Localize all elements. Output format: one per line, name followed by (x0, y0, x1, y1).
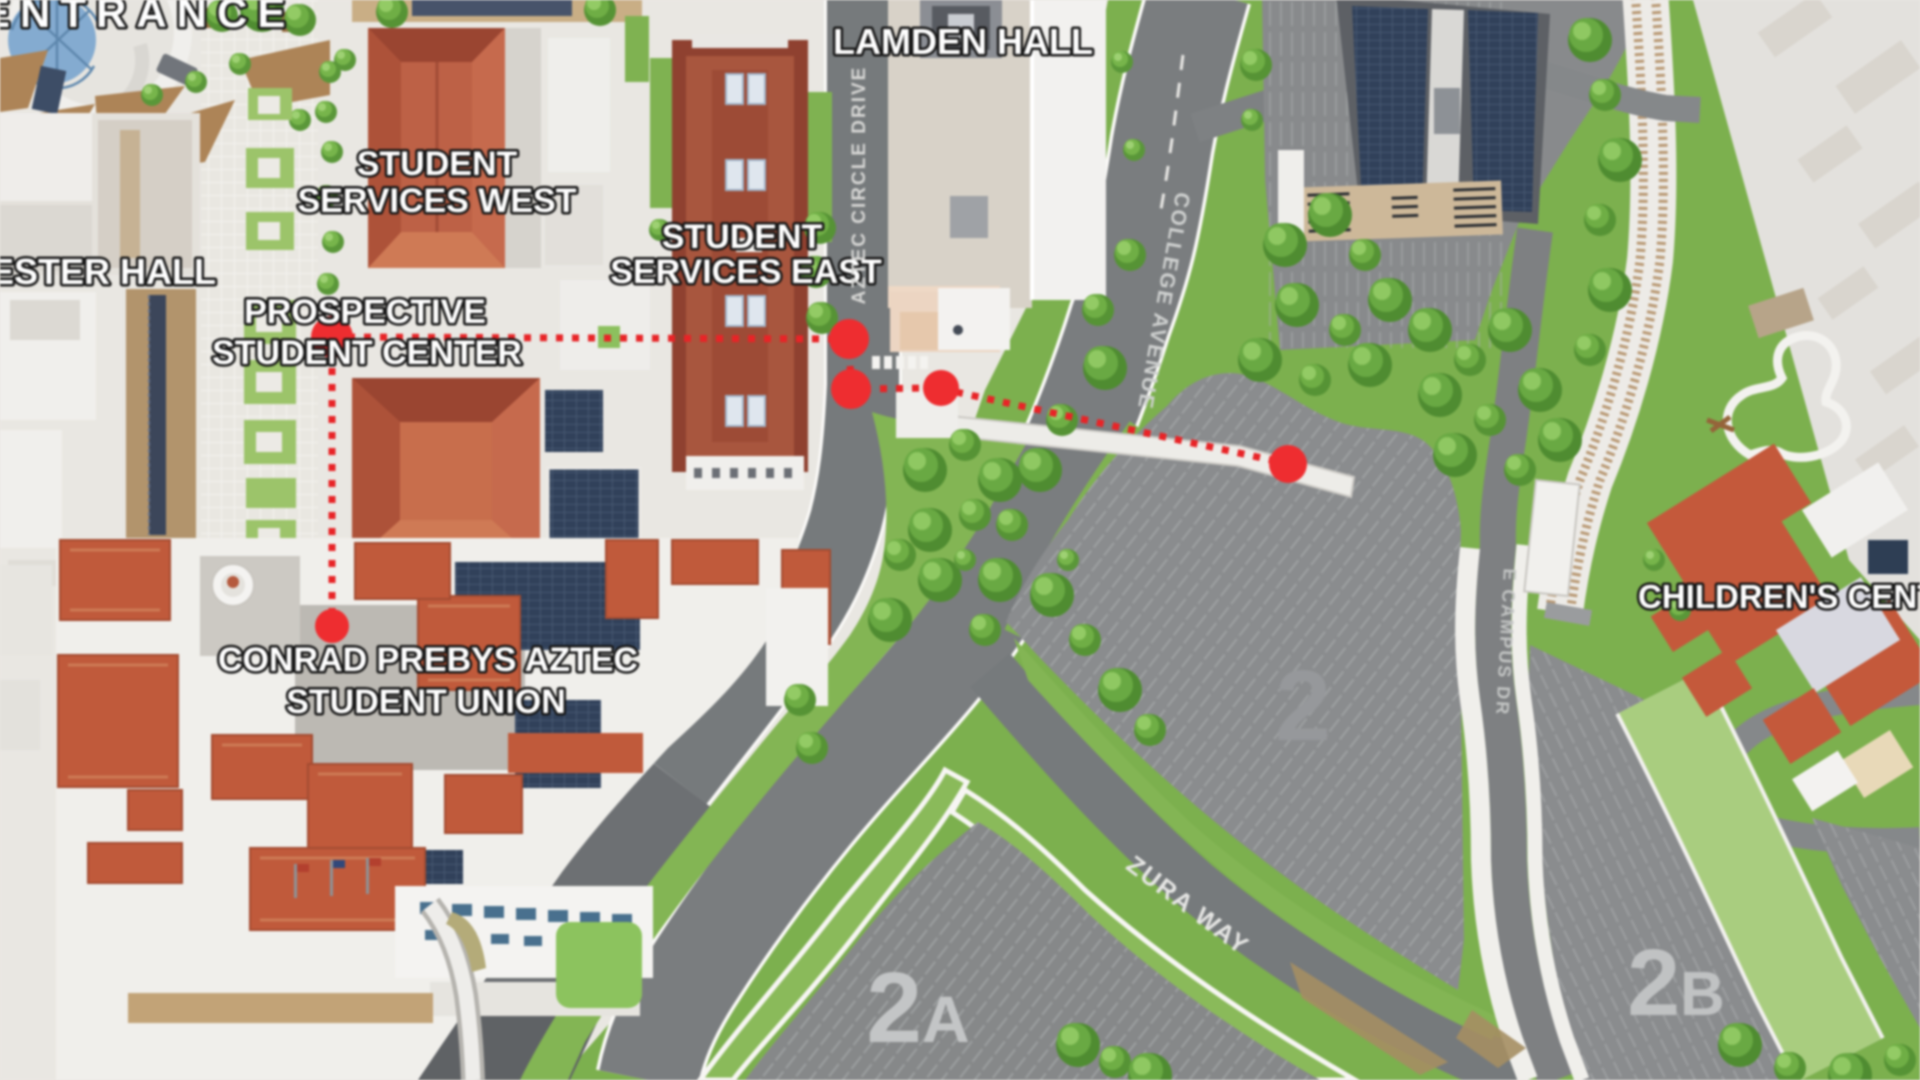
svg-text:SERVICES WEST: SERVICES WEST (298, 182, 577, 220)
svg-text:AZTEC CIRCLE DRIVE: AZTEC CIRCLE DRIVE (849, 66, 870, 305)
svg-text:LAMDEN HALL: LAMDEN HALL (833, 21, 1093, 62)
svg-text:ESTER HALL: ESTER HALL (0, 251, 216, 292)
svg-text:SERVICES EAST: SERVICES EAST (610, 253, 882, 291)
svg-text:PROSPECTIVE: PROSPECTIVE (244, 293, 486, 331)
svg-text:CHILDREN'S CENTER: CHILDREN'S CENTER (1638, 578, 1920, 615)
svg-text:STUDENT UNION: STUDENT UNION (286, 683, 566, 721)
svg-text:STUDENT CENTER: STUDENT CENTER (212, 334, 522, 372)
svg-text:ENTRANCE: ENTRANCE (0, 0, 295, 36)
svg-text:STUDENT: STUDENT (662, 218, 823, 256)
svg-text:CONRAD PREBYS AZTEC: CONRAD PREBYS AZTEC (218, 641, 638, 679)
svg-text:2: 2 (1275, 650, 1331, 762)
svg-text:STUDENT: STUDENT (357, 145, 518, 183)
